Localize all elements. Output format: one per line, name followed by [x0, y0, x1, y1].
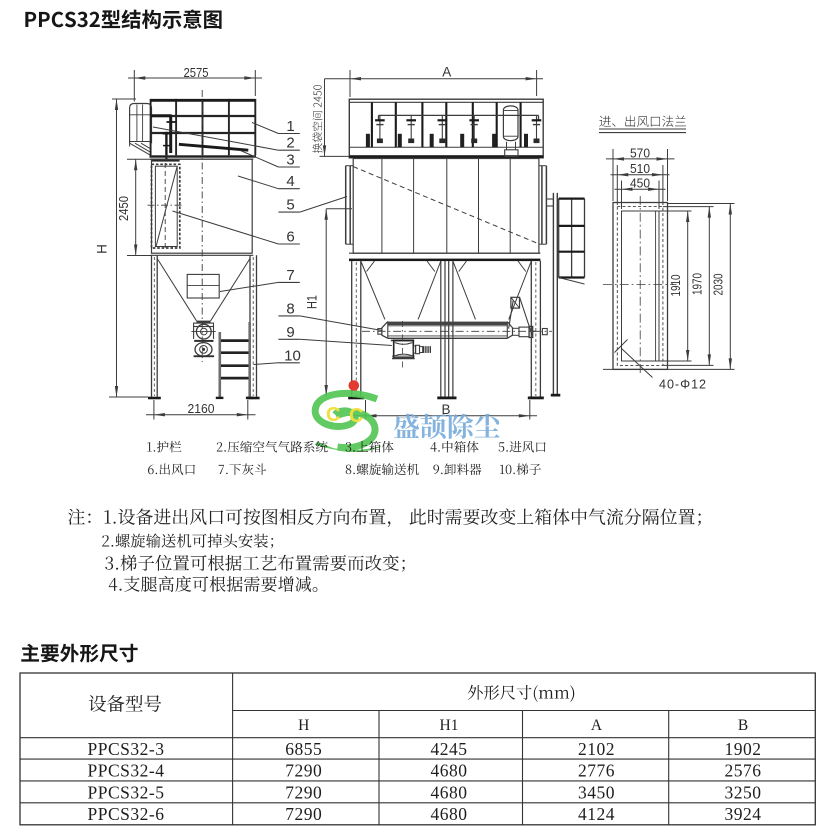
svg-text:3450: 3450	[578, 782, 615, 802]
svg-text:7290: 7290	[285, 761, 322, 781]
svg-text:6: 6	[286, 229, 294, 246]
svg-text:2576: 2576	[725, 761, 762, 781]
svg-text:40-Φ12: 40-Φ12	[659, 377, 707, 392]
svg-text:A: A	[442, 65, 451, 80]
svg-text:4245: 4245	[431, 739, 468, 759]
svg-text:3250: 3250	[725, 782, 762, 802]
svg-text:2102: 2102	[578, 739, 615, 759]
svg-text:5: 5	[286, 197, 294, 214]
svg-text:4680: 4680	[431, 761, 468, 781]
svg-text:B: B	[738, 717, 748, 734]
svg-text:2160: 2160	[188, 401, 215, 416]
svg-text:7290: 7290	[285, 782, 322, 802]
svg-text:H1: H1	[440, 717, 459, 734]
svg-text:C: C	[326, 404, 340, 426]
svg-text:7290: 7290	[285, 804, 322, 824]
svg-text:1970: 1970	[691, 273, 705, 295]
svg-text:4: 4	[286, 173, 294, 190]
svg-text:2030: 2030	[712, 273, 726, 295]
svg-text:450: 450	[630, 177, 650, 191]
svg-text:9: 9	[286, 324, 294, 341]
svg-text:4124: 4124	[578, 804, 615, 824]
svg-text:8: 8	[286, 300, 294, 317]
svg-text:A: A	[591, 717, 603, 734]
svg-text:PPCS32-5: PPCS32-5	[88, 782, 165, 802]
svg-text:1910: 1910	[669, 274, 683, 296]
svg-text:510: 510	[630, 162, 650, 176]
svg-text:2575: 2575	[184, 65, 209, 80]
svg-text:10: 10	[284, 347, 301, 364]
svg-text:4680: 4680	[431, 804, 468, 824]
svg-text:PPCS32-3: PPCS32-3	[88, 739, 165, 759]
svg-text:H: H	[298, 717, 309, 734]
svg-text:2776: 2776	[578, 761, 615, 781]
svg-text:1: 1	[286, 118, 294, 135]
svg-text:3: 3	[286, 152, 294, 169]
svg-text:PPCS32-4: PPCS32-4	[88, 761, 165, 781]
svg-text:4680: 4680	[431, 782, 468, 802]
svg-text:3924: 3924	[725, 804, 762, 824]
svg-text:2450: 2450	[117, 196, 131, 221]
svg-text:7: 7	[286, 267, 294, 284]
svg-text:C: C	[349, 405, 363, 427]
svg-text:6855: 6855	[285, 739, 322, 759]
svg-text:PPCS32-6: PPCS32-6	[88, 804, 165, 824]
svg-text:2: 2	[286, 135, 294, 152]
svg-text:1902: 1902	[725, 739, 762, 759]
svg-text:570: 570	[630, 146, 650, 160]
svg-text:H: H	[95, 244, 110, 254]
svg-text:H1: H1	[305, 295, 320, 309]
